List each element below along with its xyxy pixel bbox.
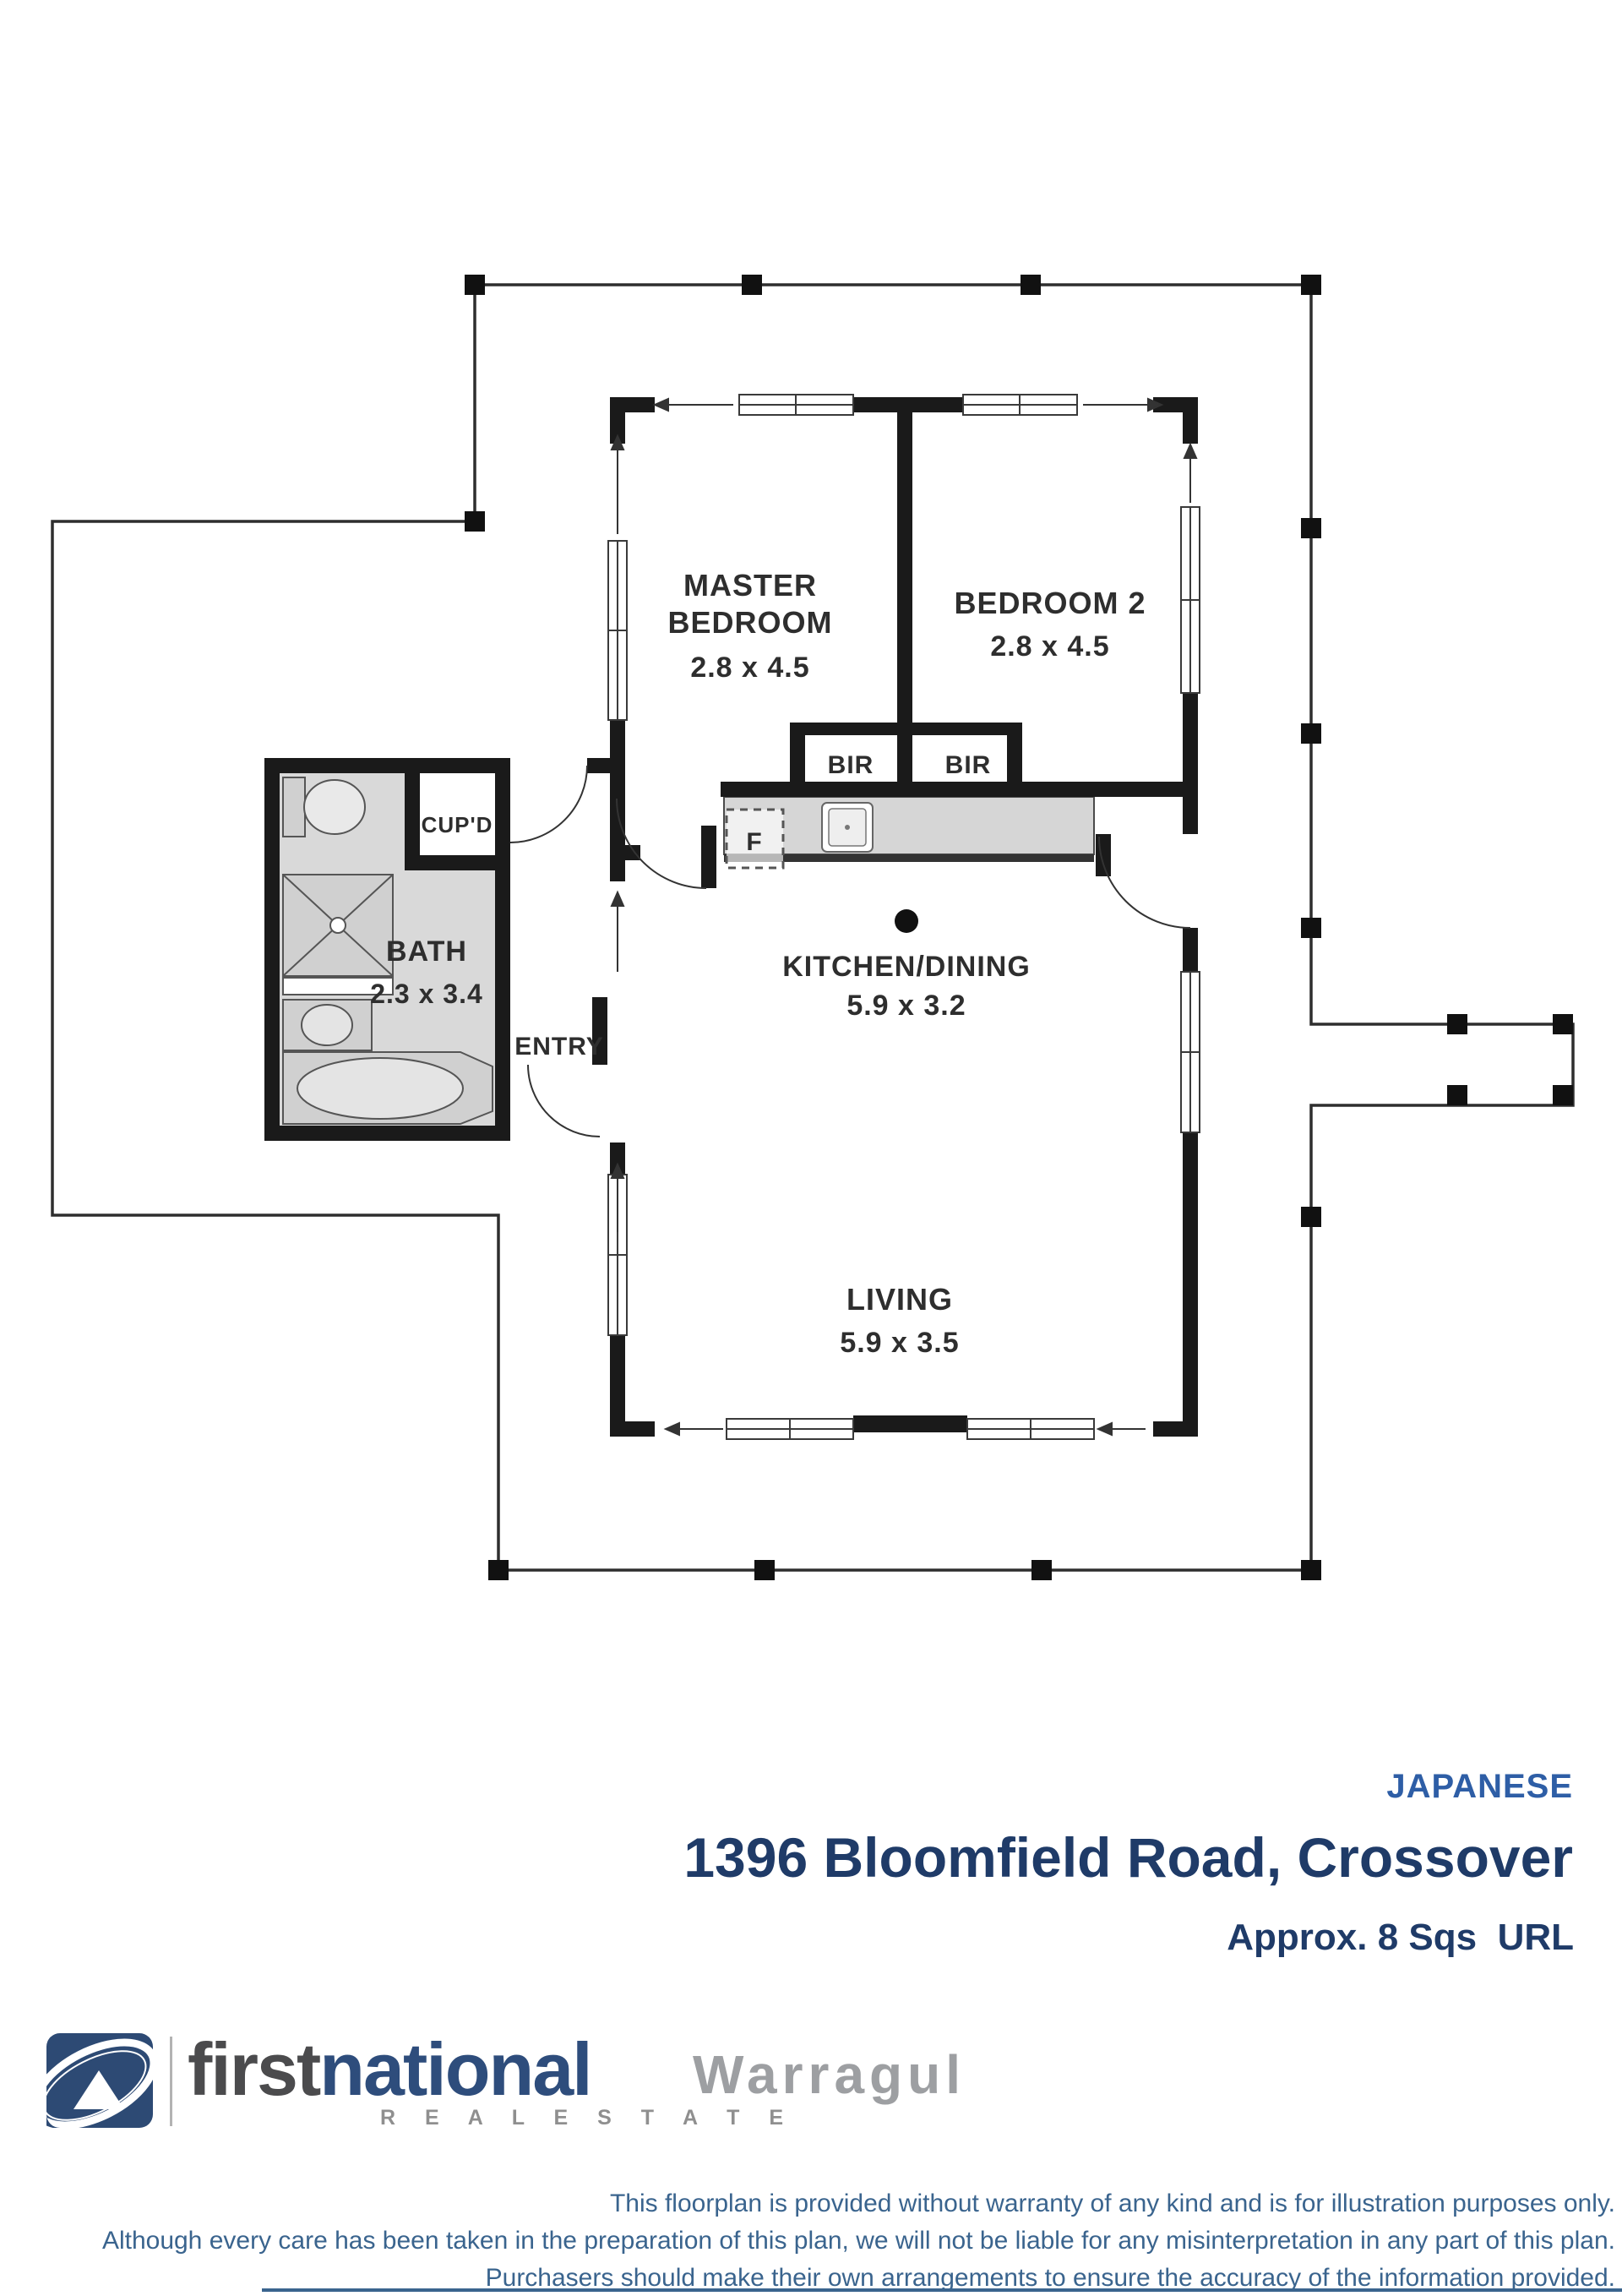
disclaimer-line1: This floorplan is provided without warra…	[102, 2185, 1615, 2222]
window	[1181, 507, 1200, 693]
bathtub	[283, 1052, 493, 1124]
deck-post	[1301, 723, 1321, 744]
label-fridge: F	[746, 828, 762, 856]
label-bedroom2-dims: 2.8 x 4.5	[990, 630, 1109, 663]
brand-subtitle: R E A L E S T A T E	[380, 2106, 795, 2130]
label-bath-dims: 2.3 x 3.4	[370, 979, 483, 1009]
deck-post	[1447, 1014, 1467, 1034]
window	[967, 1419, 1094, 1439]
disclaimer-line2: Although every care has been taken in th…	[102, 2222, 1615, 2260]
label-bedroom2: BEDROOM 2	[954, 586, 1146, 620]
deck-post	[1301, 1207, 1321, 1227]
light-point	[895, 909, 918, 933]
window	[608, 541, 627, 720]
sink	[822, 803, 873, 852]
label-kitchen-dims: 5.9 x 3.2	[846, 990, 966, 1022]
deck-post	[754, 1560, 775, 1580]
label-master-2: BEDROOM	[668, 605, 833, 640]
floorplan-page: MASTER BEDROOM 2.8 x 4.5 BEDROOM 2 2.8 x…	[0, 0, 1622, 2296]
label-bath: BATH	[386, 935, 467, 968]
firstnational-logo	[46, 2033, 153, 2128]
door-arc-corridor	[510, 766, 587, 843]
door-arc-entry	[528, 1065, 600, 1137]
label-bir-right: BIR	[945, 751, 992, 779]
brand-national: national	[319, 2027, 591, 2111]
deck-post	[1301, 1560, 1321, 1580]
logo-divider	[170, 2037, 172, 2126]
label-living: LIVING	[846, 1282, 953, 1317]
deck-post	[488, 1560, 509, 1580]
shower	[283, 875, 393, 995]
label-kitchen: KITCHEN/DINING	[782, 951, 1031, 983]
deck-post	[1301, 518, 1321, 538]
door-arc-kitchen-east	[1099, 837, 1190, 928]
vanity	[283, 1000, 372, 1050]
window	[1181, 972, 1200, 1132]
door-arc-master	[617, 799, 706, 888]
deck-post	[1021, 275, 1041, 295]
bottom-rule	[262, 2288, 1622, 2292]
label-master-dims: 2.8 x 4.5	[690, 652, 809, 684]
label-cupboard: CUP'D	[422, 812, 493, 837]
deck-post	[1553, 1014, 1573, 1034]
house-walls	[587, 397, 1198, 1437]
listing-address: 1396 Bloomfield Road, Crossover	[683, 1825, 1573, 1890]
label-living-dims: 5.9 x 3.5	[840, 1327, 959, 1359]
window	[727, 1419, 853, 1439]
firstnational-logo-mark	[46, 2033, 153, 2128]
toilet	[283, 777, 365, 837]
disclaimer: This floorplan is provided without warra…	[102, 2185, 1615, 2296]
window	[963, 395, 1077, 415]
label-master-1: MASTER	[683, 568, 817, 603]
deck-post	[465, 511, 485, 532]
listing-size-note: Approx. 8 Sqs URL	[1227, 1917, 1574, 1959]
deck-post	[465, 275, 485, 295]
window	[739, 395, 853, 415]
office-name: Warragul	[693, 2043, 966, 2106]
deck-post	[742, 275, 762, 295]
deck-post	[1031, 1560, 1052, 1580]
deck-post	[1301, 275, 1321, 295]
deck-post	[1447, 1085, 1467, 1105]
brand-wordmark: firstnational	[188, 2026, 591, 2113]
label-bir-left: BIR	[828, 751, 874, 779]
deck-posts	[465, 275, 1573, 1580]
deck-post	[1301, 918, 1321, 938]
label-entry: ENTRY	[514, 1033, 604, 1061]
brand-first: first	[188, 2027, 319, 2111]
style-tag: JAPANESE	[1386, 1768, 1573, 1806]
deck-post	[1553, 1085, 1573, 1105]
